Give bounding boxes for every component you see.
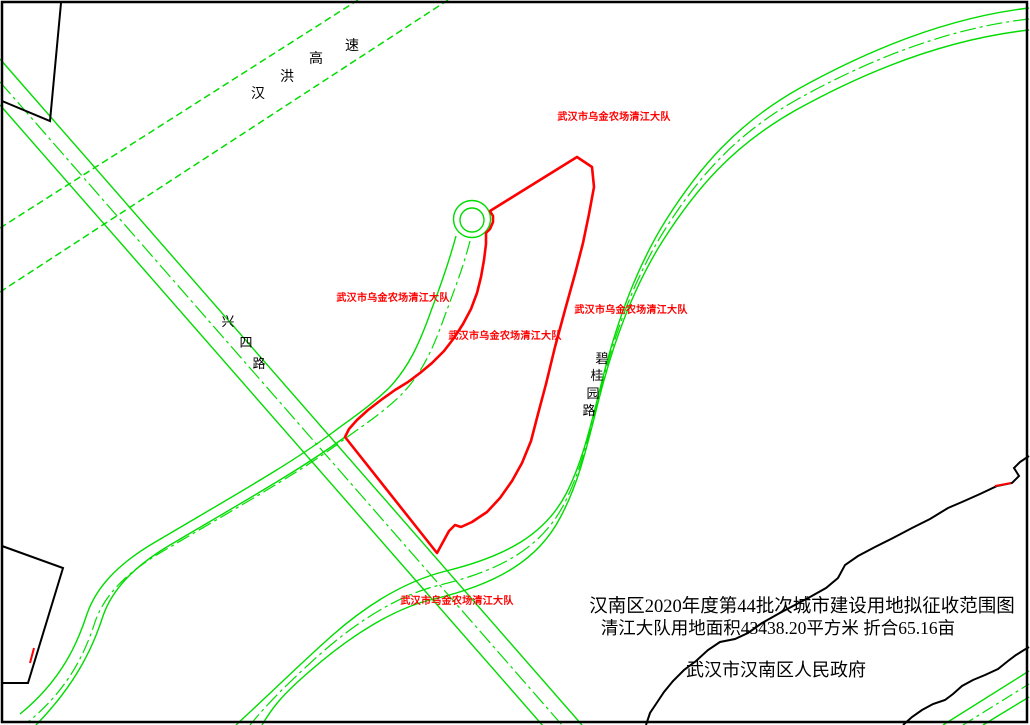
map-issuer: 武汉市汉南区人民政府 [686,660,866,680]
xingsi-char-2: 四 [239,335,252,350]
biguiyuan-label: 碧 桂 园 路 [582,351,608,418]
biguiyuan-char-4: 路 [582,403,595,418]
expressway-char-2: 洪 [280,69,294,85]
xingsi-char-3: 路 [252,356,265,371]
parcel-label-east: 武汉市乌金农场清江大队 [574,303,688,316]
xingsi-edge-east [0,59,582,725]
expressway-char-1: 汉 [251,86,265,102]
roundabout-inner [460,208,484,232]
expressway-edge-south [0,0,448,292]
xingsi-edge-west [0,105,551,725]
red-tick-southwest [30,648,34,663]
biguiyuan-char-3: 园 [586,386,599,401]
biguiyuan-char-1: 碧 [595,351,608,366]
corner-road-centerline [963,684,1029,725]
planning-map-canvas: 武汉市乌金农场清江大队 武汉市乌金农场清江大队 武汉市乌金农场清江大队 武汉市乌… [0,0,1030,725]
map-title: 汉南区2020年度第44批次城市建设用地拟征收范围图 [589,596,1015,617]
northwest-wedge [2,3,61,121]
parcel-label-center: 武汉市乌金农场清江大队 [448,329,562,342]
culdesac-centerline [28,241,470,722]
map-subtitle: 清江大队用地面积43438.20平方米 折合65.16亩 [601,618,955,638]
expressway-road [0,0,448,292]
expressway-edge-north [0,0,358,228]
expressway-char-3: 高 [309,50,323,67]
corner-road-edge1 [943,671,1029,725]
map-drawing: 武汉市乌金农场清江大队 武汉市乌金农场清江大队 武汉市乌金农场清江大队 武汉市乌… [0,0,1030,725]
corner-road-southeast [943,671,1029,725]
cul-de-sac-road [20,201,491,725]
jagged-terrain-line [646,456,1029,725]
xingsi-road [0,59,582,725]
expressway-char-4: 速 [345,38,359,54]
biguiyuan-char-2: 桂 [590,368,603,383]
culdesac-edge-west [20,236,456,714]
parcel-label-top: 武汉市乌金农场清江大队 [557,110,671,123]
xingsi-char-1: 兴 [221,314,234,329]
title-block: 汉南区2020年度第44批次城市建设用地拟征收范围图 清江大队用地面积43438… [589,596,1015,680]
parcel-label-west: 武汉市乌金农场清江大队 [336,291,450,304]
jagged-terrain-line-corner [903,647,1029,725]
acquisition-boundary [345,157,594,553]
xingsi-centerline [0,82,562,725]
parcel-label-south: 武汉市乌金农场清江大队 [400,594,514,607]
southwest-quad [2,546,63,683]
